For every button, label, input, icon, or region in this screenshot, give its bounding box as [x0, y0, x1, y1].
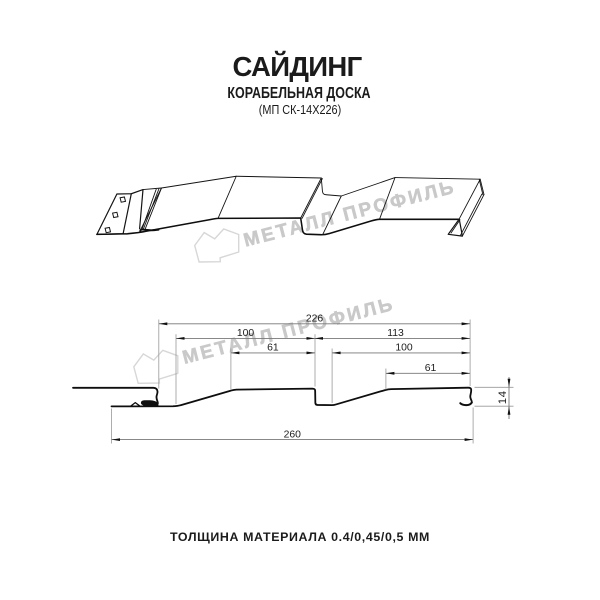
- svg-text:61: 61: [425, 363, 437, 374]
- svg-text:МЕТАЛЛ ПРОФИЛЬ: МЕТАЛЛ ПРОФИЛЬ: [241, 177, 458, 252]
- svg-text:113: 113: [387, 328, 404, 339]
- svg-text:260: 260: [284, 429, 302, 440]
- svg-text:14: 14: [497, 390, 509, 404]
- svg-text:МЕТАЛЛ ПРОФИЛЬ: МЕТАЛЛ ПРОФИЛЬ: [180, 294, 397, 369]
- svg-text:61: 61: [267, 343, 279, 354]
- svg-text:100: 100: [237, 328, 255, 339]
- svg-text:226: 226: [306, 314, 324, 325]
- svg-text:100: 100: [395, 343, 413, 354]
